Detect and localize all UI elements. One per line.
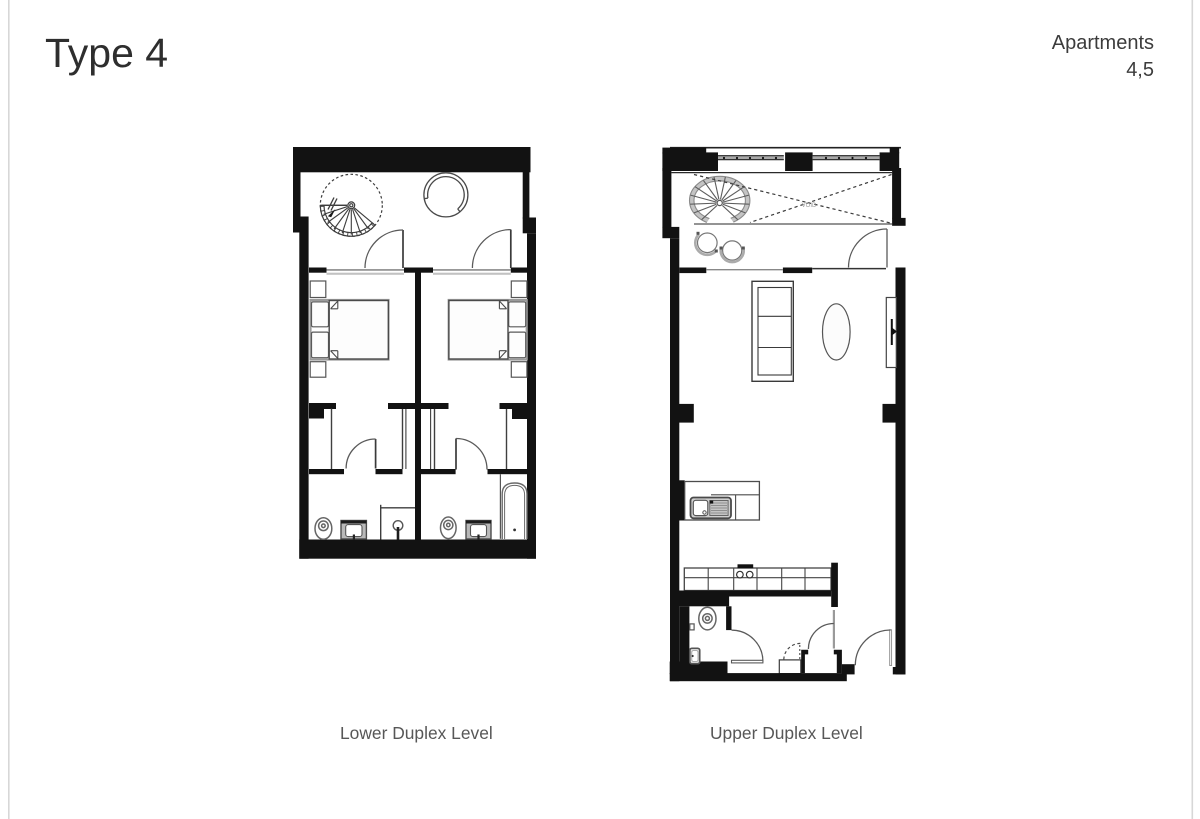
svg-text:VOID: VOID — [802, 203, 817, 209]
